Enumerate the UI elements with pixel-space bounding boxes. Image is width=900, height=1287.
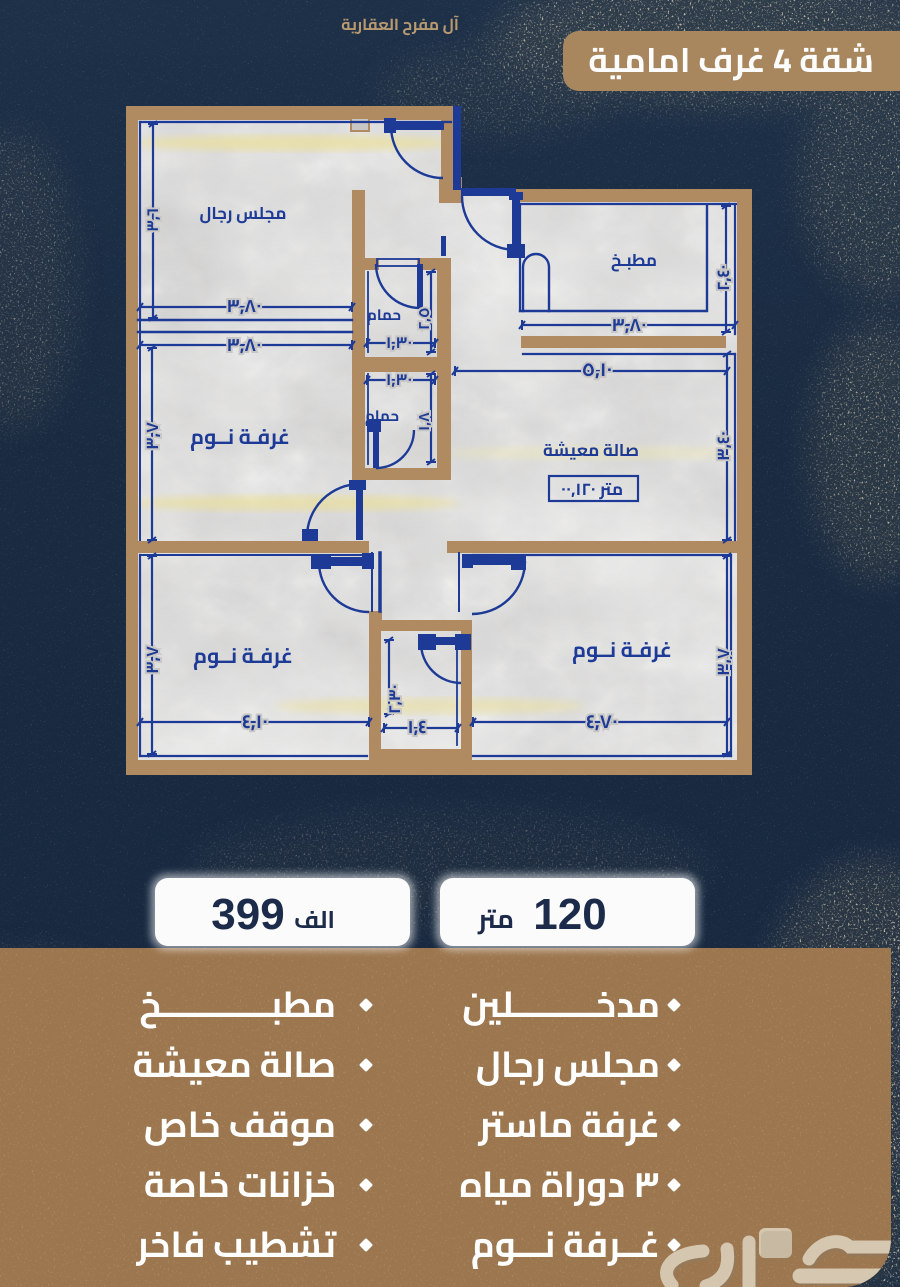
svg-text:120: 120 bbox=[533, 890, 606, 939]
svg-text:399: 399 bbox=[211, 890, 284, 939]
